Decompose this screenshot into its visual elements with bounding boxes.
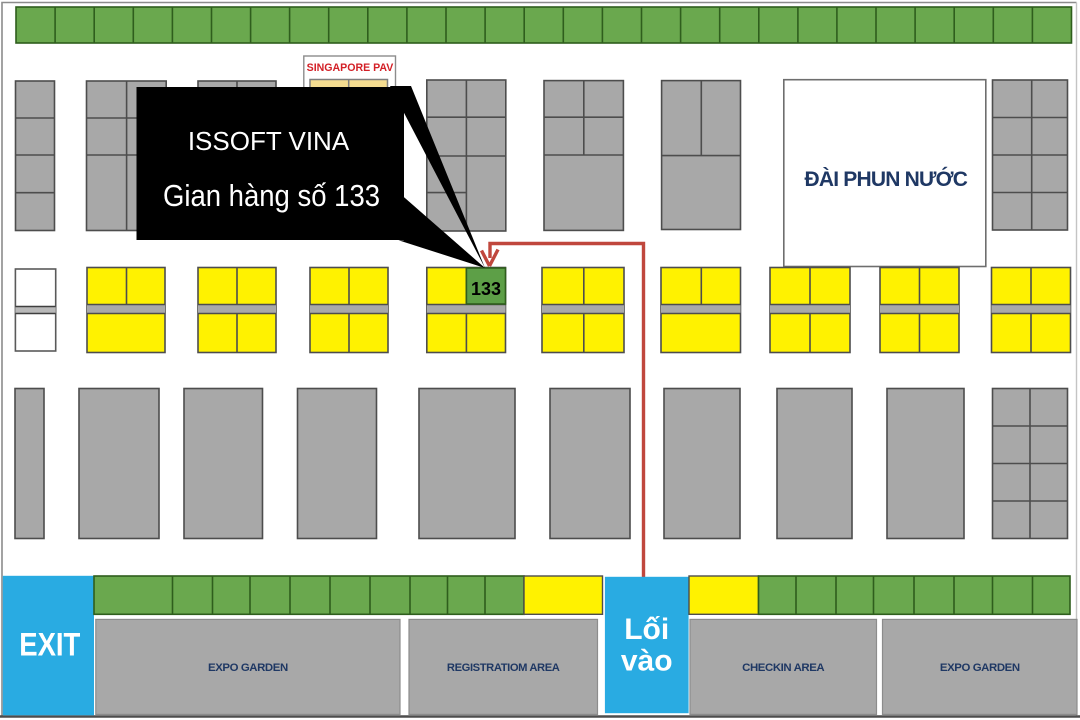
svg-text:CHECKIN AREA: CHECKIN AREA [742,662,824,674]
svg-text:Gian hàng số 133: Gian hàng số 133 [163,180,380,214]
svg-text:EXIT: EXIT [19,627,81,663]
svg-text:ĐÀI PHUN NƯỚC: ĐÀI PHUN NƯỚC [804,167,967,191]
svg-text:SINGAPORE PAV: SINGAPORE PAV [307,62,394,74]
svg-text:vào: vào [621,645,673,678]
svg-text:ISSOFT VINA: ISSOFT VINA [188,126,350,156]
svg-text:133: 133 [471,279,501,299]
svg-text:EXPO GARDEN: EXPO GARDEN [940,662,1020,674]
svg-text:Lối: Lối [624,613,669,646]
svg-text:REGISTRATIOM AREA: REGISTRATIOM AREA [447,662,560,674]
svg-text:EXPO GARDEN: EXPO GARDEN [208,662,288,674]
